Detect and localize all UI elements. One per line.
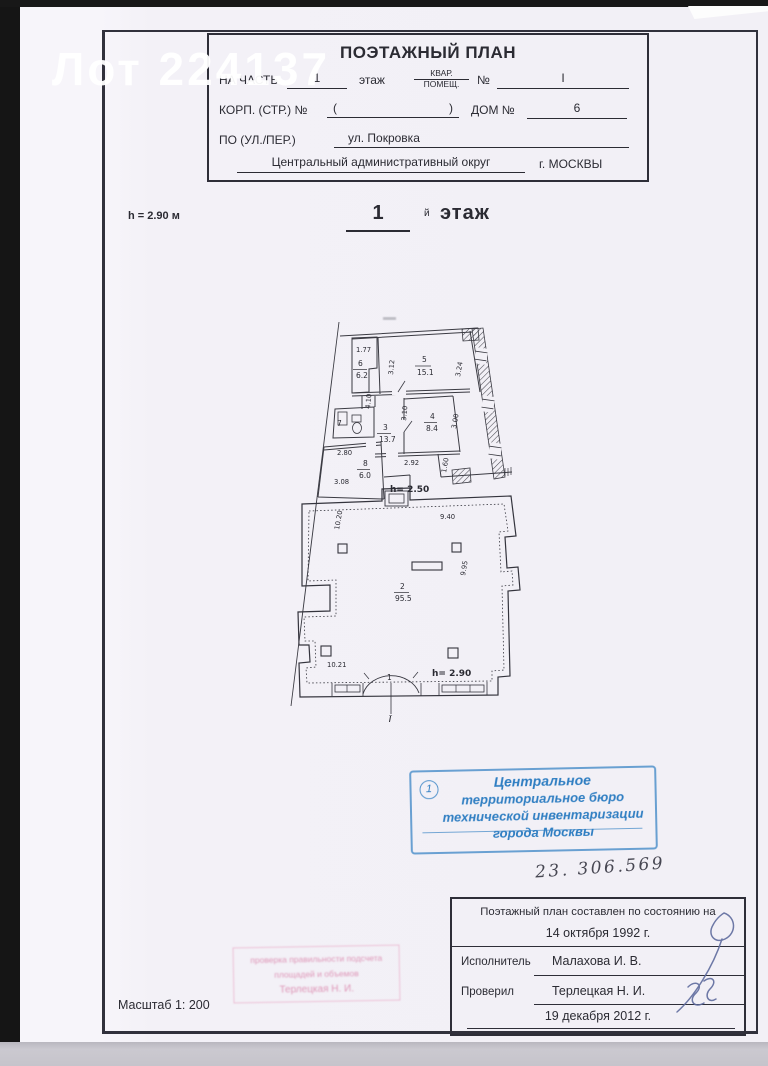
scan-edge-left	[0, 0, 20, 1066]
street-value-field: ул. Покровка	[334, 131, 629, 148]
svg-text:h= 2.90: h= 2.90	[432, 669, 471, 679]
svg-text:6.0: 6.0	[359, 471, 371, 480]
pink-stamp-line-3: Терлецкая Н. И.	[234, 981, 399, 999]
svg-text:3: 3	[383, 423, 388, 432]
svg-text:2: 2	[400, 582, 405, 591]
pink-stamp-line-1: проверка правильности подсчета	[234, 951, 399, 969]
svg-text:9.95: 9.95	[459, 560, 470, 576]
bti-blue-stamp: 1 Центральное территориальное бюро техни…	[409, 765, 658, 854]
paren-open: (	[333, 101, 337, 117]
paren-close: )	[449, 101, 453, 117]
svg-text:1: 1	[387, 673, 392, 682]
ceiling-height-note: h = 2.90 м	[128, 210, 180, 222]
svg-text:3.00: 3.00	[450, 413, 461, 429]
svg-text:10.20: 10.20	[333, 510, 344, 531]
pomesch-label: ПОМЕЩ.	[414, 80, 469, 89]
svg-text:15.1: 15.1	[417, 368, 434, 377]
signature	[452, 899, 744, 1034]
svg-text:9.40: 9.40	[440, 513, 455, 521]
svg-text:7: 7	[337, 419, 342, 428]
svg-text:3.24: 3.24	[454, 361, 465, 377]
svg-text:13.7: 13.7	[379, 435, 396, 444]
svg-text:3.12: 3.12	[387, 359, 396, 375]
stamp-text: Центральное территориальное бюро техниче…	[437, 771, 648, 844]
svg-text:4: 4	[430, 412, 435, 421]
floor-word: этаж	[359, 73, 385, 87]
number-sign: №	[477, 73, 490, 87]
svg-text:8: 8	[363, 459, 368, 468]
floor-plan-drawing: 1.77 6 6.2 3.12 5 15.1 3.24 4.10 7 3 13.…	[278, 310, 526, 722]
city-label: г. МОСКВЫ	[539, 157, 602, 171]
korp-field: ( )	[327, 101, 459, 118]
scan-edge-top	[0, 0, 768, 7]
svg-text:3.10: 3.10	[400, 405, 409, 421]
scan-background-bottom	[0, 1042, 768, 1066]
floor-number: 1	[346, 202, 410, 232]
svg-text:3.08: 3.08	[334, 478, 349, 486]
svg-text:6: 6	[358, 359, 363, 368]
street-label: ПО (УЛ./ПЕР.)	[219, 133, 296, 147]
pink-checker-stamp: проверка правильности подсчета площадей …	[233, 945, 401, 1004]
number-value-field: I	[497, 71, 629, 89]
floor-word-heading: этаж	[440, 202, 490, 225]
lot-watermark: Лот 224137	[52, 42, 330, 96]
scale-label: Масштаб 1: 200	[118, 998, 210, 1012]
district-field: Центральный административный округ	[237, 155, 525, 173]
stamp-number-circle: 1	[419, 780, 438, 799]
dom-label: ДОМ №	[471, 103, 515, 117]
svg-text:2.80: 2.80	[337, 449, 352, 457]
svg-text:1.77: 1.77	[356, 346, 371, 354]
svg-text:95.5: 95.5	[395, 594, 412, 603]
svg-text:8.4: 8.4	[426, 424, 438, 433]
kvar-pomesch-stack: КВАР. ПОМЕЩ.	[414, 69, 469, 89]
plan-walls	[291, 317, 512, 706]
svg-text:h= 2.50: h= 2.50	[390, 485, 429, 495]
svg-text:5: 5	[422, 355, 427, 364]
bottom-info-table: Поэтажный план составлен по состоянию на…	[450, 897, 746, 1036]
svg-text:6.2: 6.2	[356, 371, 368, 380]
svg-text:4.10: 4.10	[364, 393, 373, 409]
dom-value-field: 6	[527, 101, 627, 119]
korp-label: КОРП. (СТР.) №	[219, 103, 307, 117]
svg-text:I: I	[387, 715, 393, 722]
floor-number-suffix: й	[424, 208, 430, 219]
svg-text:1.60: 1.60	[440, 457, 451, 473]
svg-text:10.21: 10.21	[327, 661, 346, 669]
plan-labels: 1.77 6 6.2 3.12 5 15.1 3.24 4.10 7 3 13.…	[327, 346, 471, 722]
svg-text:2.92: 2.92	[404, 459, 419, 467]
